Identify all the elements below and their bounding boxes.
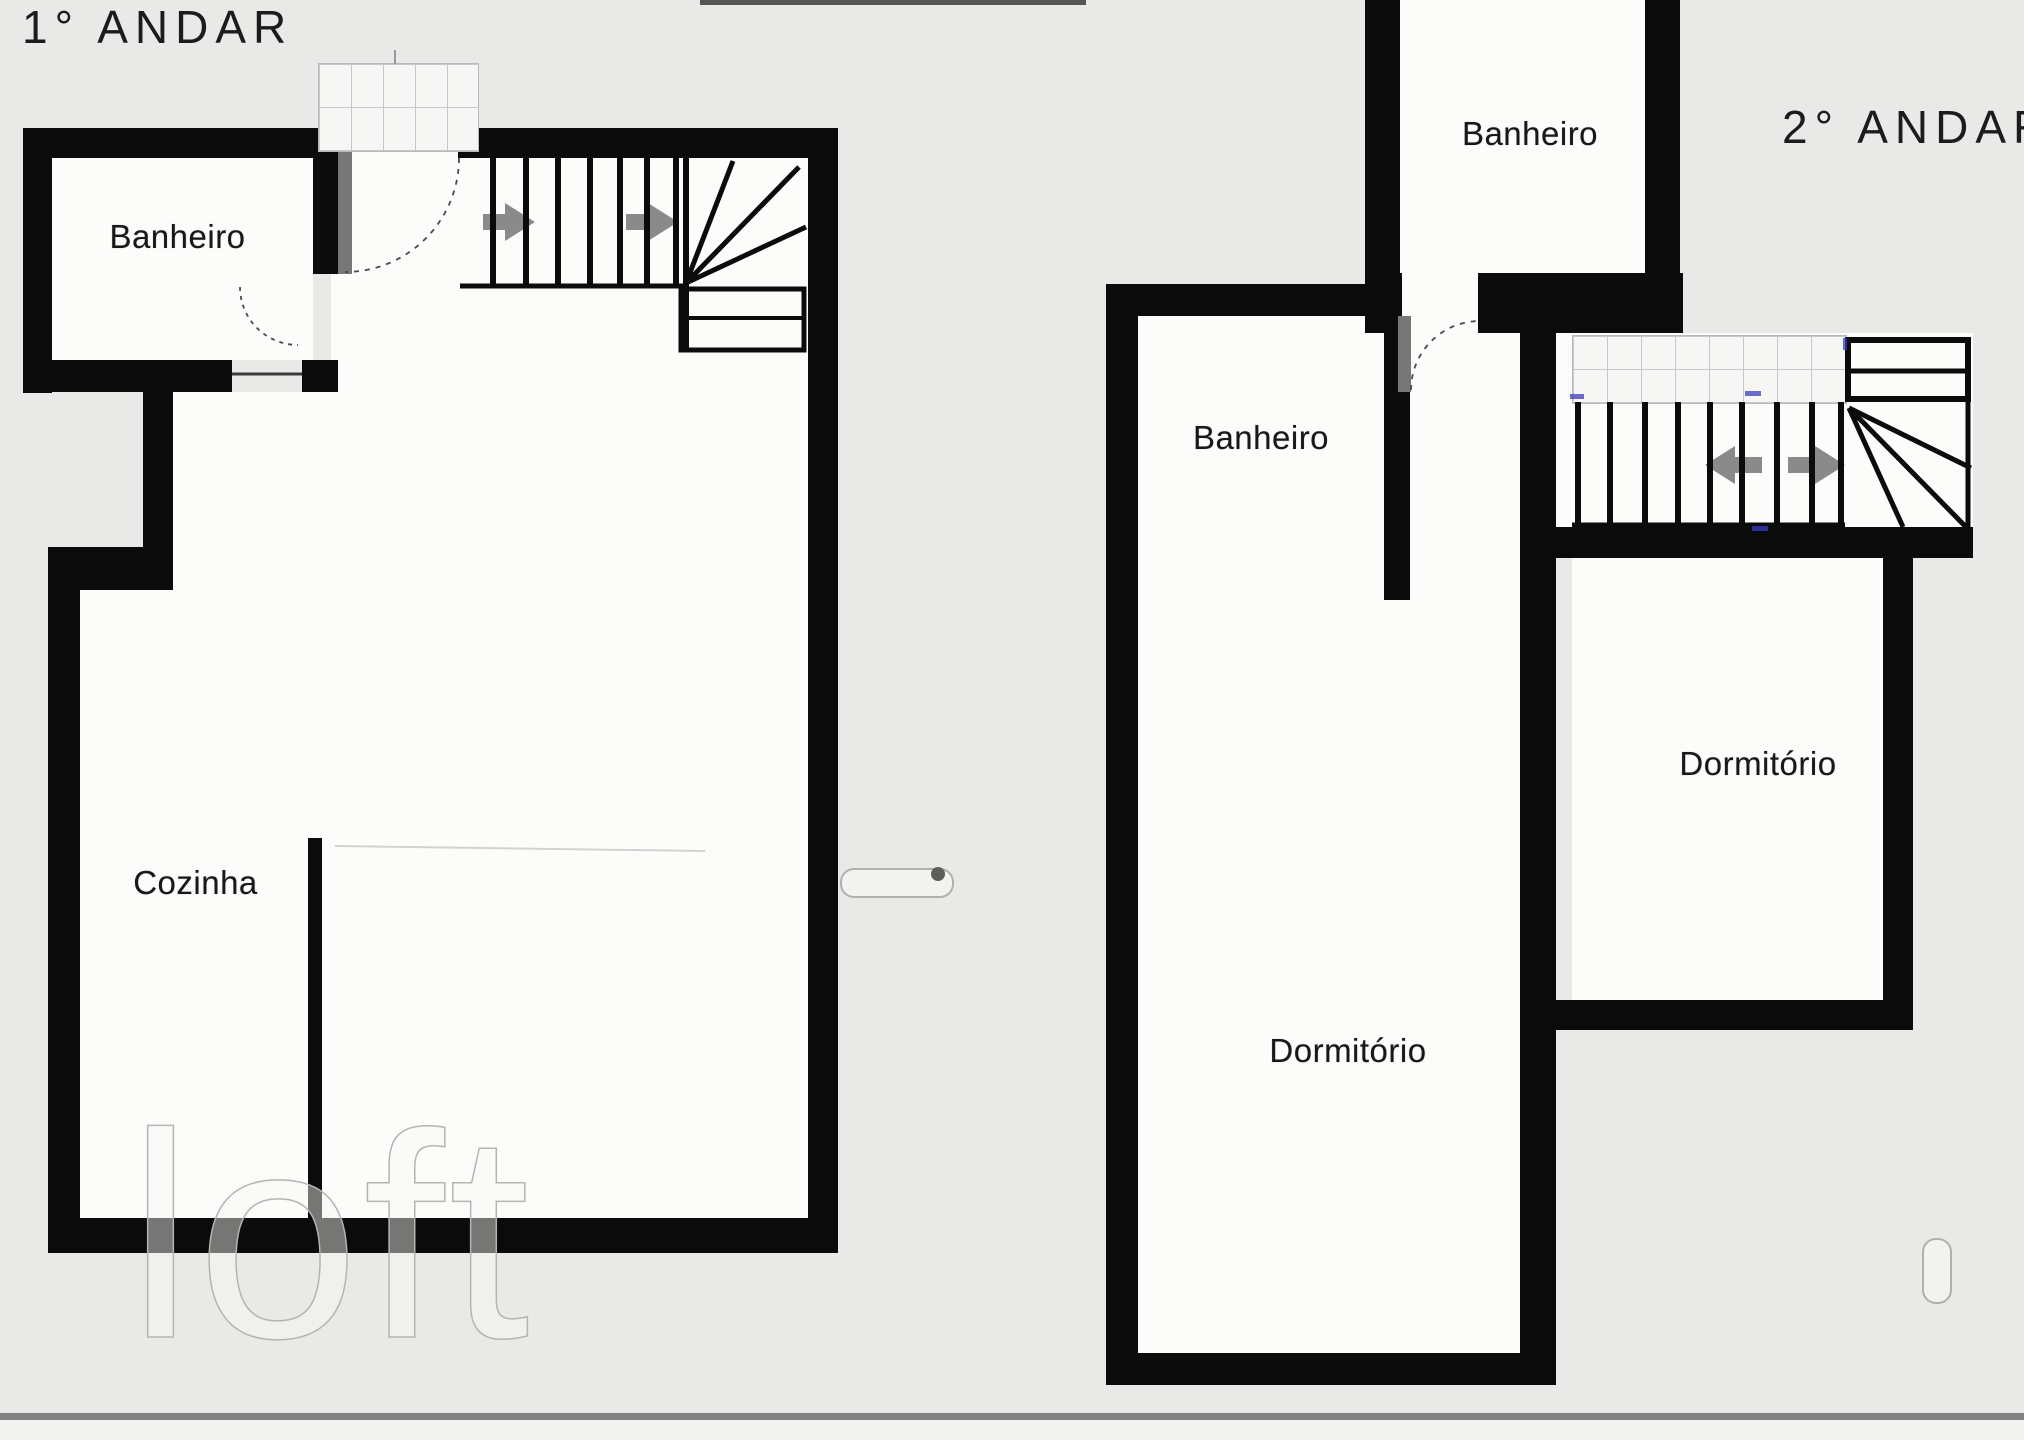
floor1-banheiro-room xyxy=(52,158,313,360)
wall-f2-banheirotop-bottom-right xyxy=(1478,273,1683,333)
floor2-window-icon xyxy=(1572,335,1847,404)
floor2-main-room xyxy=(1138,316,1520,1353)
floor2-banheirotop-door-icon xyxy=(1398,316,1411,392)
footer-strip xyxy=(0,1420,2024,1440)
floor1-title: 1° ANDAR xyxy=(22,0,293,54)
wall-f1-top-right xyxy=(458,128,838,158)
wall-f2-banheirotop-bottom-left xyxy=(1365,273,1402,333)
loft-watermark-logo: loft xyxy=(128,1068,534,1404)
floor1-stairs-arrow2-body xyxy=(626,214,648,230)
floor1-cozinha-label: Cozinha xyxy=(88,864,303,902)
floor1-banheiro-label: Banheiro xyxy=(70,218,285,256)
page-divider-line xyxy=(0,1413,2024,1420)
floor2-stairs-arrow-left-icon xyxy=(1705,446,1735,484)
floor2-stairs-arrow-left-body xyxy=(1735,457,1762,473)
wall-f2-banheirotop-left xyxy=(1365,0,1400,307)
floor2-banheirotop-door-opening xyxy=(1402,273,1478,333)
wall-f1-banheiro-bottom-stub xyxy=(302,360,338,392)
wall-f2-main-right xyxy=(1520,284,1556,1385)
floor1-exterior-door-handle xyxy=(840,868,954,898)
wall-f2-banheirotop-right xyxy=(1645,0,1680,307)
wall-f1-right xyxy=(808,128,838,1253)
floor1-living-room xyxy=(331,158,808,1218)
floor1-stairs-arrow1-body xyxy=(483,214,505,230)
dimension-tick xyxy=(1752,526,1768,531)
dimension-tick xyxy=(1843,338,1847,350)
floor1-stairs-arrow2-icon xyxy=(648,203,678,241)
floorplan-page: { "titles": { "floor1": "1° ANDAR", "flo… xyxy=(0,0,2024,1440)
floor1-window-icon xyxy=(318,63,479,152)
wall-f1-left-lower xyxy=(48,547,80,1253)
wall-f2-dormright-bottom xyxy=(1520,1000,1913,1030)
floor1-stairs-arrow1-icon xyxy=(505,203,535,241)
floor2-banheiro-label: Banheiro xyxy=(1151,419,1371,457)
wall-f1-left-upper xyxy=(23,128,52,393)
wall-f1-banheiro-bottom xyxy=(23,360,232,392)
floor2-dormitorio-right-label: Dormitório xyxy=(1628,745,1888,783)
dimension-tick xyxy=(1570,394,1584,399)
floor2-dormitorio-main-label: Dormitório xyxy=(1218,1032,1478,1070)
top-edge-wall-fragment xyxy=(700,0,1086,5)
wall-f2-main-left xyxy=(1106,284,1138,1385)
floor1-entry-door-icon xyxy=(338,150,352,274)
floor2-stairs-arrow-right-body xyxy=(1788,457,1815,473)
floor2-stairs-arrow-right-icon xyxy=(1815,446,1845,484)
floor2-title: 2° ANDAR xyxy=(1782,100,2024,154)
floor2-exterior-door-handle xyxy=(1922,1238,1952,1304)
wall-f1-top-left xyxy=(23,128,338,158)
dimension-tick xyxy=(1745,391,1761,396)
wall-f2-main-bottom xyxy=(1106,1353,1552,1385)
floor2-banheiro-top-label: Banheiro xyxy=(1420,115,1640,153)
wall-f2-main-top xyxy=(1106,284,1365,316)
